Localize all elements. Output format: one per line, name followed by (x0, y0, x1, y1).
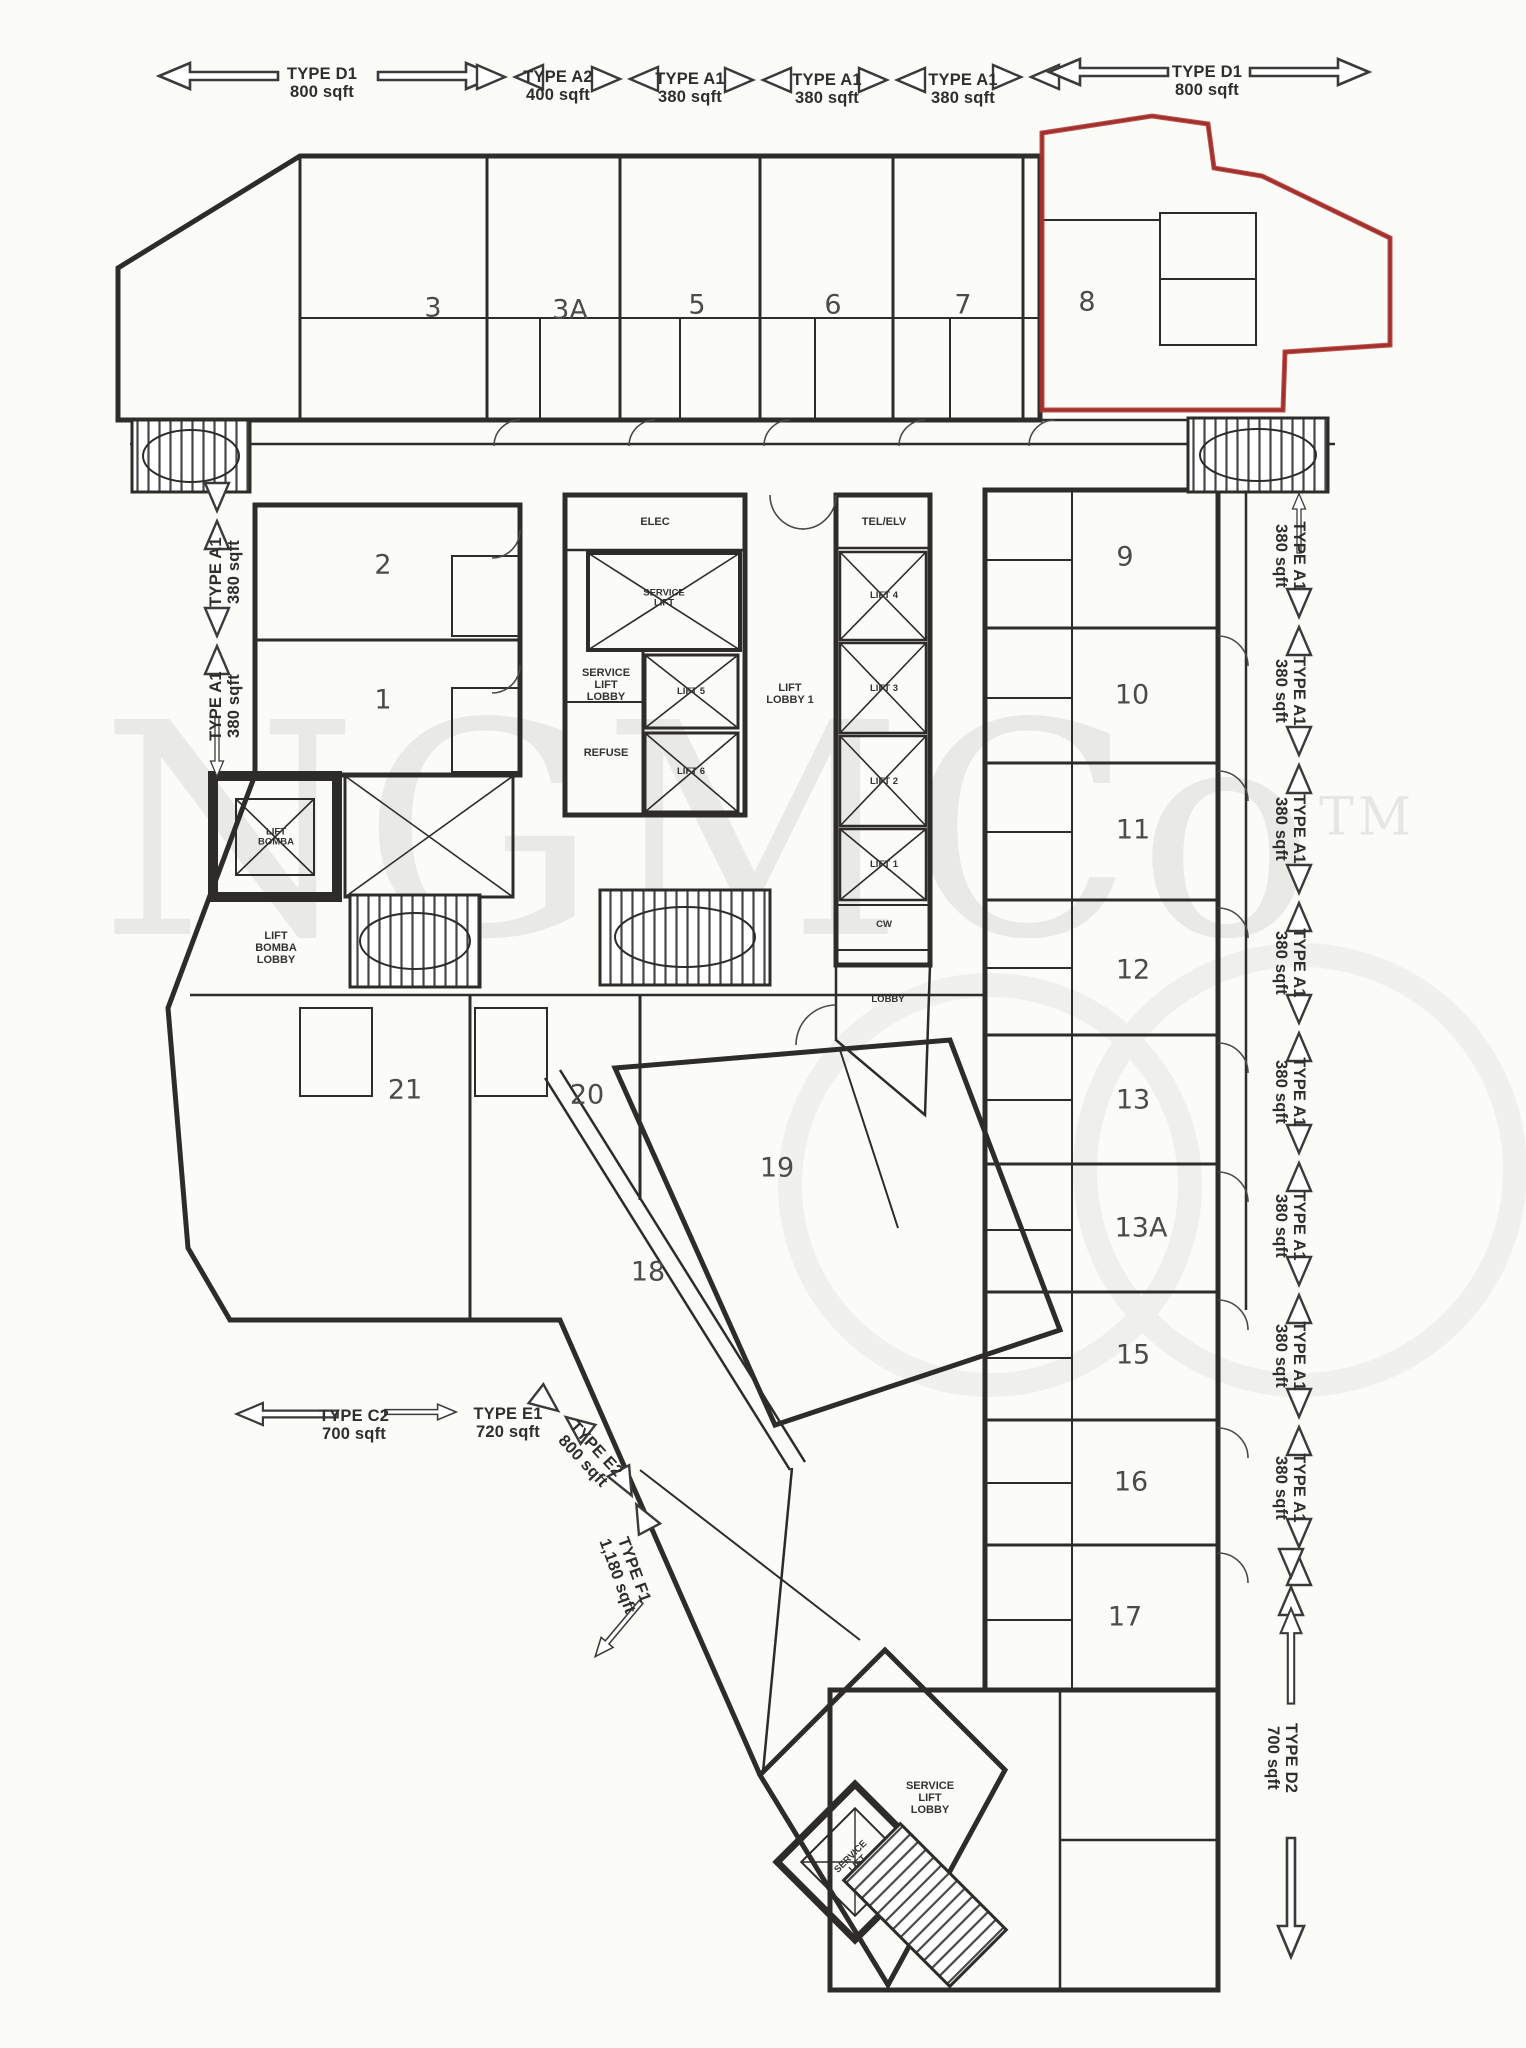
unit-number-21: 21 (388, 1075, 422, 1106)
unit-number-10: 10 (1115, 680, 1149, 711)
unit-number-13a: 13A (1115, 1213, 1168, 1244)
room-label-lift-6: LIFT 6 (677, 767, 705, 777)
room-label-service-lift-lobby-bottom: SERVICE LIFT LOBBY (906, 1780, 954, 1816)
unit-number-1: 1 (374, 685, 391, 716)
legend-right-type-a1-8: TYPE A1380 sqft (1272, 1453, 1326, 1523)
room-label-lift-4: LIFT 4 (870, 591, 898, 601)
room-label-lift-5: LIFT 5 (677, 687, 705, 697)
unit-number-3a: 3A (552, 295, 588, 326)
room-label-refuse: REFUSE (584, 747, 629, 759)
room-label-tel-elv: TEL/ELV (862, 516, 906, 528)
room-label-service-lift-lobby: SERVICE LIFT LOBBY (582, 667, 630, 703)
unit-number-9: 9 (1116, 542, 1133, 573)
unit-number-8: 8 (1078, 287, 1095, 318)
legend-right-type-d2: TYPE D2700 sqft (1264, 1723, 1318, 1793)
room-label-lift-lobby-1: LIFT LOBBY 1 (766, 682, 813, 706)
legend-top-type-a2: TYPE A2400 sqft (523, 50, 593, 104)
legend-top-type-d1: TYPE D1800 sqft (287, 47, 357, 101)
legend-left-type-a1-1: TYPE A1380 sqft (189, 537, 243, 607)
unit-number-11: 11 (1116, 815, 1150, 846)
floor-plan-page: NGMCoTM (0, 0, 1526, 2048)
room-label-elec: ELEC (640, 516, 669, 528)
room-label-lift-3: LIFT 3 (870, 684, 898, 694)
room-label-lift-bomba-lobby: LIFT BOMBA LOBBY (255, 930, 297, 966)
legend-right-type-a1-6: TYPE A1380 sqft (1272, 1191, 1326, 1261)
unit-number-12: 12 (1116, 955, 1150, 986)
room-label-lift-1: LIFT 1 (870, 860, 898, 870)
legend-right-type-a1-3: TYPE A1380 sqft (1272, 794, 1326, 864)
legend-right-type-a1-1: TYPE A1380 sqft (1272, 521, 1326, 591)
stairs (132, 418, 1328, 1986)
unit-number-13: 13 (1116, 1085, 1150, 1116)
unit-number-2: 2 (374, 550, 391, 581)
lift-shafts (213, 552, 933, 1940)
unit-number-16: 16 (1114, 1467, 1148, 1498)
legend-top-type-a1-3: TYPE A1380 sqft (928, 53, 998, 107)
legend-bottom-type-c2: TYPE C2700 sqft (319, 1389, 389, 1443)
highlighted-unit-outline (1042, 116, 1390, 410)
legend-right-type-a1-7: TYPE A1380 sqft (1272, 1321, 1326, 1391)
legend-right-type-a1-2: TYPE A1380 sqft (1272, 656, 1326, 726)
room-label-lobby: LOBBY (871, 995, 904, 1005)
legend-top-type-d1-right: TYPE D1800 sqft (1172, 45, 1242, 99)
room-label-lift-2: LIFT 2 (870, 777, 898, 787)
unit-number-18: 18 (631, 1257, 665, 1288)
legend-top-type-a1-1: TYPE A1380 sqft (655, 52, 725, 106)
unit8-walls (1042, 116, 1390, 410)
legend-left-type-a1-2: TYPE A1380 sqft (189, 671, 243, 741)
unit-number-6: 6 (824, 290, 841, 321)
unit-number-5: 5 (688, 290, 705, 321)
room-label-cw: CW (876, 920, 892, 930)
room-label-lift-bomba: LIFT BOMBA (258, 828, 294, 849)
unit-number-20: 20 (570, 1080, 604, 1111)
room-label-service-lift: SERVICE LIFT (643, 589, 685, 610)
unit-number-19: 19 (760, 1153, 794, 1184)
legend-right-type-a1-4: TYPE A1380 sqft (1272, 928, 1326, 998)
unit-number-3: 3 (424, 293, 441, 324)
unit-number-7: 7 (954, 290, 971, 321)
watermark-rings (790, 955, 1515, 1385)
unit-number-17: 17 (1108, 1602, 1142, 1633)
legend-bottom-type-e1: TYPE E1720 sqft (473, 1387, 542, 1441)
outer-walls (118, 156, 1218, 1990)
unit-number-15: 15 (1116, 1340, 1150, 1371)
legend-right-type-a1-5: TYPE A1380 sqft (1272, 1057, 1326, 1127)
legend-top-type-a1-2: TYPE A1380 sqft (792, 53, 862, 107)
